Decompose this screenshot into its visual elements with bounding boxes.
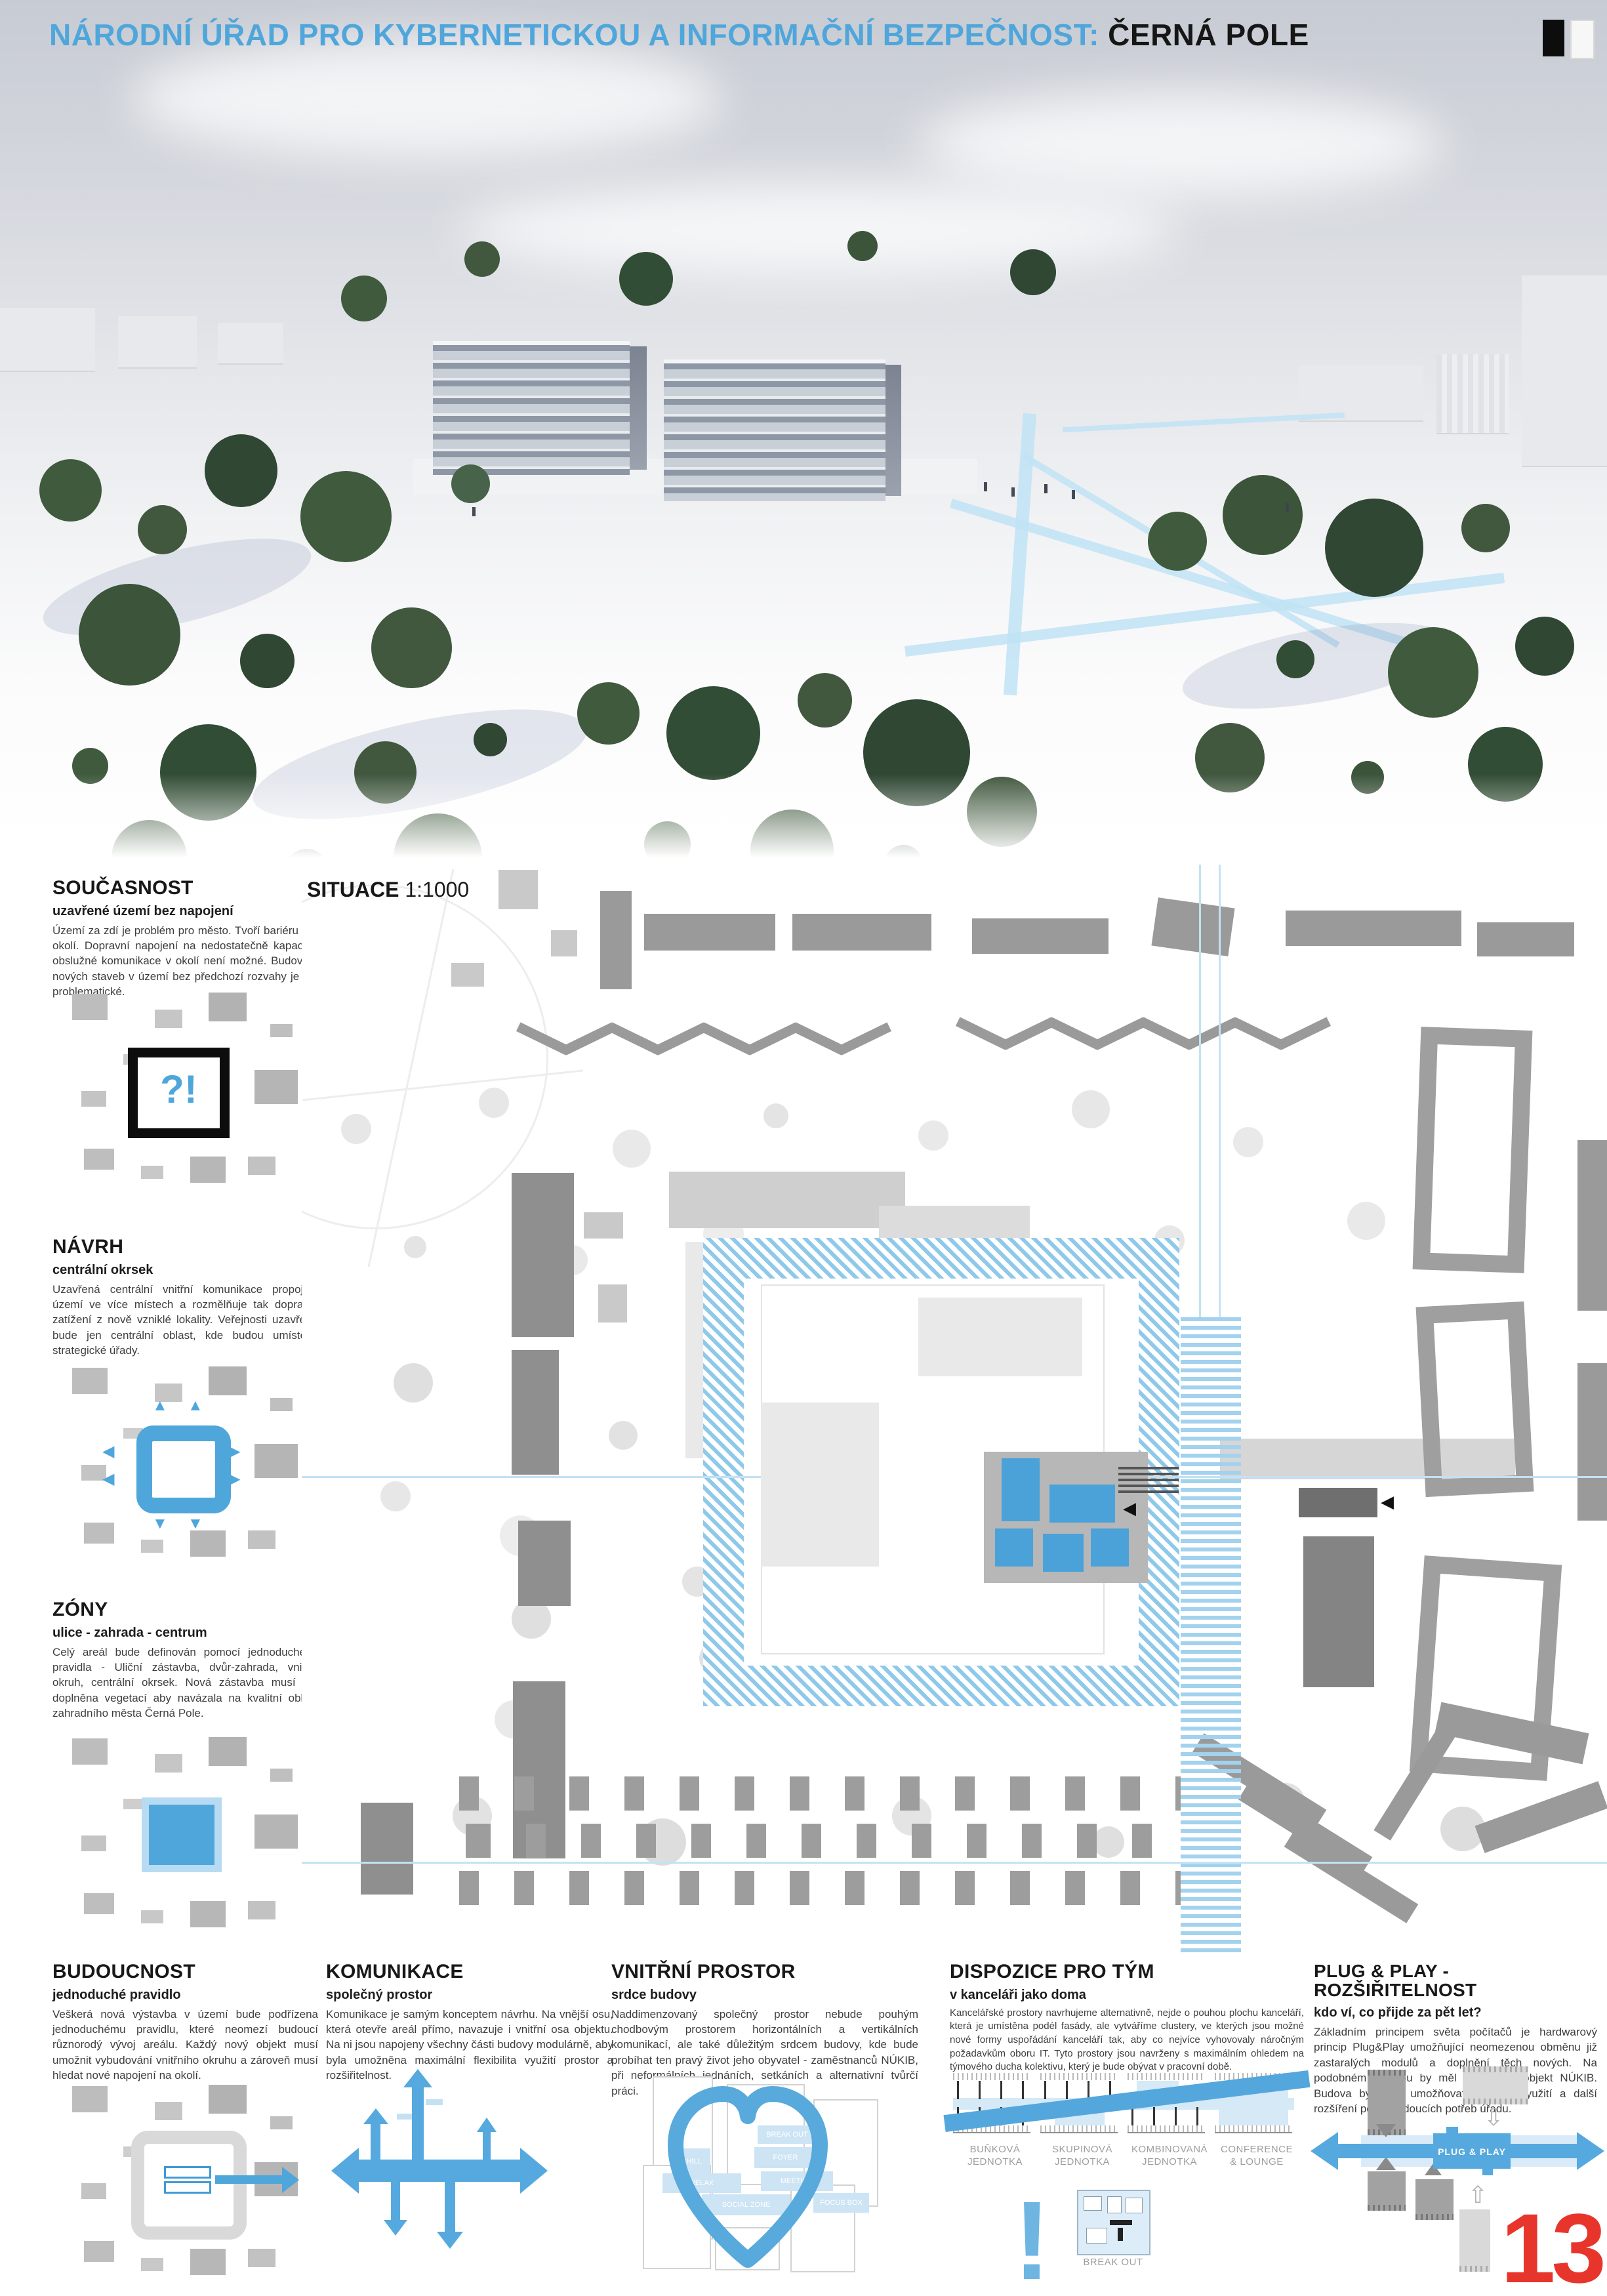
zigzag-houses	[525, 1034, 892, 1047]
new-building-bar	[164, 2166, 211, 2179]
diagram-zony-map	[59, 1732, 289, 1929]
section-navrh: NÁVRH centrální okrsek Uzavřená centráln…	[52, 1237, 318, 1359]
plan-building	[972, 918, 1109, 954]
unit-label-line1: KOMBINOVANÁ	[1131, 2144, 1208, 2155]
section-komunikace: KOMUNIKACE společný prostor Komunikace j…	[326, 1961, 613, 2083]
unit-walls	[957, 2081, 1027, 2099]
axis-faint-bar	[426, 2099, 443, 2105]
tree-shadow	[1177, 606, 1461, 725]
arrow-left-icon: ◀	[102, 1471, 114, 1487]
unit-label: KOMBINOVANÁ JEDNOTKA	[1127, 2144, 1212, 2169]
plan-building	[1477, 922, 1574, 956]
plan-building	[512, 1350, 559, 1475]
cloud-shape	[131, 39, 722, 157]
section-dispozice: DISPOZICE PRO TÝM v kanceláři jako doma …	[950, 1961, 1304, 2074]
axis-arrow-left	[331, 2148, 359, 2194]
row-houses	[459, 1871, 1181, 1905]
plan-building	[512, 1173, 574, 1337]
axis-horizontal-bar	[357, 2160, 521, 2182]
site-plan: SITUACE 1:1000	[302, 865, 1607, 1955]
section-title: SOUČASNOST	[52, 878, 318, 899]
map-buildings	[72, 1368, 108, 1394]
page-number: 13	[1501, 2199, 1602, 2296]
section-body: Uzavřená centrální vnitřní komunikace pr…	[52, 1282, 318, 1359]
section-title: DISPOZICE PRO TÝM	[950, 1961, 1304, 1982]
page-indicator-filled-icon	[1543, 20, 1564, 56]
nukib-building	[1049, 1485, 1115, 1523]
axis-down-bar	[391, 2182, 400, 2220]
extension-arrow-head	[282, 2167, 299, 2193]
distant-building	[0, 308, 95, 371]
plan-building	[361, 1803, 413, 1895]
page-title-blue: NÁRODNÍ ÚŘAD PRO KYBERNETICKOU A INFORMA…	[49, 18, 1099, 52]
central-ring-symbol	[136, 1425, 231, 1513]
situace-label: SITUACE	[307, 878, 399, 901]
plan-building	[1284, 1828, 1419, 1923]
map-buildings	[72, 994, 108, 1020]
furniture	[1084, 2196, 1102, 2211]
plan-building	[1577, 1363, 1607, 1521]
unit-label-line2: JEDNOTKA	[967, 2156, 1023, 2167]
diagram-office-units	[953, 2073, 1301, 2136]
section-body: Veškerá nová výstavba v území bude podří…	[52, 2007, 318, 2083]
chip-pins	[1463, 2066, 1528, 2072]
plan-trees	[341, 1114, 371, 1144]
aerial-render-image	[0, 0, 1607, 872]
axis-up-bar	[483, 2132, 491, 2160]
module-arrow-down-outline: ⇩	[1484, 2106, 1503, 2129]
diagram-soucasnost-map: ?!	[59, 987, 289, 1184]
section-soucasnost: SOUČASNOST uzavřené území bez napojení Ú…	[52, 878, 318, 1000]
axis-up-bar	[371, 2124, 380, 2160]
row-houses	[459, 1776, 1181, 1811]
distant-building	[1299, 365, 1423, 420]
chip-pins	[1368, 2070, 1406, 2076]
entrance-marker-icon: ◀	[1123, 1500, 1136, 1517]
map-buildings	[72, 1738, 108, 1765]
cloud-shape	[459, 184, 1181, 276]
section-subtitle: v kanceláři jako doma	[950, 1987, 1304, 2003]
plan-building	[498, 870, 538, 909]
arrow-down-icon: ▼	[152, 1516, 168, 1532]
unit-label: BUŇKOVÁ JEDNOTKA	[952, 2144, 1038, 2169]
chip-pins	[1368, 2205, 1406, 2211]
plan-building	[1151, 897, 1234, 956]
unit-label-line2: & LOUNGE	[1230, 2156, 1284, 2167]
break-out-label: BREAK OUT	[1070, 2257, 1156, 2269]
plan-building	[584, 1212, 623, 1239]
plan-building	[1286, 911, 1461, 946]
question-exclamation-symbol: ?!	[138, 1067, 220, 1112]
section-subtitle: uzavřené území bez napojení	[52, 903, 318, 919]
axis-faint-bar	[397, 2114, 414, 2120]
unit-base	[1215, 2132, 1292, 2133]
section-title: ZÓNY	[52, 1599, 318, 1620]
extension-arrow-bar	[215, 2175, 283, 2184]
arrow-down-icon: ▼	[188, 1516, 203, 1532]
exclamation-icon: !	[1013, 2191, 1051, 2291]
unit-base	[1040, 2132, 1118, 2133]
blue-zone-symbol	[142, 1797, 222, 1872]
axis-down-head	[384, 2220, 407, 2236]
section-subtitle: společný prostor	[326, 1987, 613, 2003]
blue-path-line	[1219, 865, 1221, 1317]
courtyard-block	[1413, 1027, 1533, 1273]
module-arrow-up	[1376, 2157, 1396, 2170]
new-building-bar	[164, 2181, 211, 2194]
plug-notch	[1446, 2127, 1458, 2135]
site-plan-title: SITUACE 1:1000	[307, 878, 469, 902]
unit-walls	[1131, 2107, 1201, 2125]
section-body: Celý areál bude definován pomocí jednodu…	[52, 1645, 318, 1721]
arrow-right-icon: ▶	[228, 1471, 240, 1487]
distant-building	[218, 323, 283, 363]
plan-building	[451, 963, 484, 987]
plan-building	[761, 1403, 879, 1567]
plan-building	[598, 1284, 627, 1322]
plan-building	[551, 930, 577, 956]
tree-row-back	[341, 276, 387, 321]
facade-hatch	[1128, 2073, 1205, 2080]
page-title-black: ČERNÁ POLE	[1108, 18, 1309, 52]
section-subtitle: kdo ví, co přijde za pět let?	[1314, 2005, 1597, 2020]
arrow-up-icon: ▲	[188, 1398, 203, 1414]
unit-label-line2: JEDNOTKA	[1055, 2156, 1110, 2167]
arrow-right-icon: ▶	[228, 1444, 240, 1460]
heart-icon	[649, 2073, 846, 2270]
axis-up-head	[477, 2118, 497, 2132]
people-dots	[984, 482, 987, 491]
plan-building	[669, 1172, 905, 1228]
section-title: NÁVRH	[52, 1237, 318, 1258]
module-chip	[1415, 2179, 1454, 2220]
tree-cluster-center	[577, 682, 640, 745]
module-chip	[1463, 2066, 1528, 2104]
section-title: KOMUNIKACE	[326, 1961, 613, 1982]
unit-base	[1128, 2132, 1205, 2133]
unit-label-line1: SKUPINOVÁ	[1052, 2144, 1112, 2155]
row-houses	[459, 1824, 1181, 1858]
distant-building	[1436, 354, 1509, 433]
section-title: PLUG & PLAY - ROZŠIŘITELNOST	[1314, 1961, 1597, 2000]
page-title: NÁRODNÍ ÚŘAD PRO KYBERNETICKOU A INFORMA…	[49, 17, 1309, 52]
section-subtitle: centrální okrsek	[52, 1262, 318, 1278]
unit-base	[953, 2132, 1030, 2133]
table	[1110, 2220, 1132, 2225]
furniture	[1107, 2196, 1122, 2213]
distant-building	[1522, 276, 1607, 466]
section-zony: ZÓNY ulice - zahrada - centrum Celý areá…	[52, 1599, 318, 1721]
furniture	[1126, 2198, 1143, 2213]
plug-play-label: PLUG & PLAY	[1433, 2146, 1511, 2157]
hero-fade	[0, 774, 1607, 872]
entrance-marker-icon: ◀	[1381, 1493, 1394, 1510]
arrow-left-icon: ◀	[102, 1444, 114, 1460]
break-out-plan	[1077, 2190, 1150, 2255]
plan-trees	[394, 1363, 433, 1403]
module-chip	[1368, 2171, 1406, 2211]
unit-label-line1: CONFERENCE	[1221, 2144, 1293, 2155]
section-body: Kancelářské prostory navrhujeme alternat…	[950, 2007, 1304, 2074]
map-buildings	[72, 2086, 108, 2112]
presentation-board: NÁRODNÍ ÚŘAD PRO KYBERNETICKOU A INFORMA…	[0, 0, 1607, 2296]
diagram-komunikace-axes	[326, 2066, 601, 2263]
nukib-building	[1091, 1528, 1129, 1567]
courtyard-block	[1416, 1302, 1534, 1497]
striped-promenade	[1181, 1317, 1241, 1955]
plan-building	[1299, 1488, 1377, 1517]
section-title: VNITŘNÍ PROSTOR	[611, 1961, 918, 1982]
axis-up-bar	[412, 2086, 424, 2160]
section-subtitle: ulice - zahrada - centrum	[52, 1625, 318, 1641]
module-arrow-up-outline: ⇧	[1468, 2183, 1488, 2207]
plug-axis-right-head	[1577, 2132, 1604, 2170]
plan-building	[918, 1298, 1082, 1376]
unit-label-line2: JEDNOTKA	[1142, 2156, 1197, 2167]
office-building-left-side	[630, 346, 647, 470]
path-shape	[1004, 413, 1036, 695]
axis-up-head	[363, 2108, 388, 2124]
axis-down-head	[437, 2232, 463, 2249]
plan-building	[1475, 1781, 1607, 1853]
nukib-building	[995, 1528, 1033, 1567]
plan-building	[644, 914, 775, 951]
plug-notched-block: PLUG & PLAY	[1433, 2133, 1511, 2169]
tree-shadow	[35, 519, 319, 655]
zigzag-houses	[964, 1029, 1332, 1042]
blue-path-line	[1199, 865, 1201, 1317]
blue-path-line	[302, 1862, 1607, 1864]
distant-building	[118, 316, 197, 367]
plan-building	[1303, 1536, 1374, 1687]
diagram-heart-plan: BREAK OUT CHILL FOYER RELAX MEETING SOCI…	[630, 2070, 879, 2286]
plan-building	[792, 914, 931, 951]
tree-cluster-left	[39, 459, 102, 522]
chip-pins	[1415, 2214, 1454, 2220]
facade-hatch	[1040, 2073, 1118, 2080]
axis-up-head	[403, 2069, 432, 2087]
diagram-navrh-map: ▲ ▲ ▼ ▼ ◀ ◀ ▶ ▶	[59, 1361, 289, 1558]
module-arrow-down	[1376, 2124, 1396, 2137]
section-subtitle: srdce budovy	[611, 1987, 918, 2003]
nukib-building	[1002, 1458, 1040, 1521]
tree-cluster-right	[1148, 512, 1207, 571]
axis-arrow-right	[520, 2148, 548, 2194]
plan-building	[600, 891, 632, 989]
section-title: BUDOUCNOST	[52, 1961, 318, 1982]
closed-area-rect: ?!	[128, 1048, 230, 1138]
page-indicator-empty-icon	[1570, 20, 1595, 59]
diagram-budoucnost-map	[59, 2080, 289, 2276]
unit-label: SKUPINOVÁ JEDNOTKA	[1040, 2144, 1125, 2169]
facade-hatch	[953, 2073, 1030, 2080]
table	[1118, 2228, 1123, 2241]
section-subtitle: jednoduché pravidlo	[52, 1987, 318, 2003]
situace-scale: 1:1000	[405, 878, 469, 901]
furniture	[1086, 2228, 1107, 2244]
nukib-building	[1043, 1534, 1084, 1572]
dark-hatch-strip	[1118, 1467, 1179, 1496]
plug-axis-left-head	[1311, 2132, 1338, 2170]
arrow-up-icon: ▲	[152, 1398, 168, 1414]
path-shape	[1063, 413, 1345, 432]
office-building-right-side	[885, 365, 901, 496]
plan-building	[1577, 1140, 1607, 1311]
office-building-right	[664, 359, 885, 501]
unit-label: CONFERENCE & LOUNGE	[1214, 2144, 1299, 2169]
office-building-left	[433, 341, 630, 475]
section-budoucnost: BUDOUCNOST jednoduché pravidlo Veškerá n…	[52, 1961, 318, 2083]
unit-label-line1: BUŇKOVÁ	[970, 2144, 1021, 2155]
axis-down-bar	[445, 2182, 455, 2232]
plan-building	[518, 1521, 571, 1606]
cloud-shape	[918, 92, 1443, 197]
plug-notch	[1482, 2167, 1493, 2175]
